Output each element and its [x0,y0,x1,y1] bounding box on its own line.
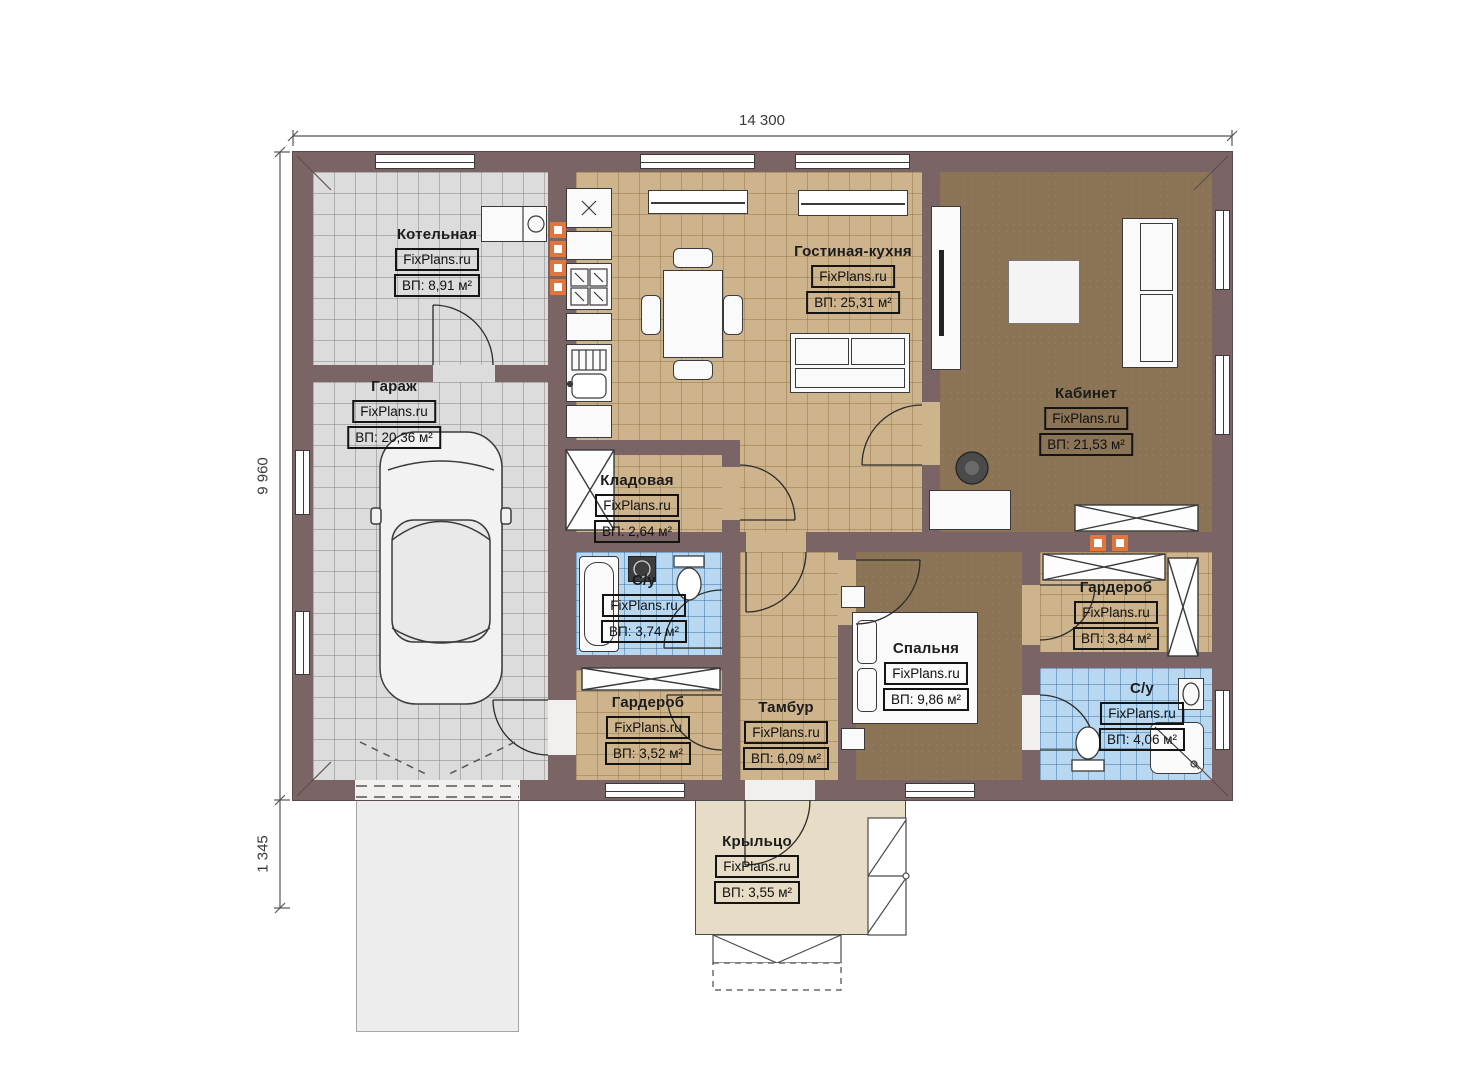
watermark: FixPlans.ru [744,721,828,744]
room-label-wardrobe2: Гардероб FixPlans.ru ВП: 3,84 м² [1073,579,1159,650]
room-name: Тамбур [743,699,829,716]
room-label-boiler: Котельная FixPlans.ru ВП: 8,91 м² [394,226,480,297]
porch-steps [713,935,841,990]
window [295,450,310,515]
floor-plan-canvas: 14 300 9 960 1 345 Котельная FixPlans.ru… [0,0,1473,1080]
room-label-bedroom: Спальня FixPlans.ru ВП: 9,86 м² [883,640,969,711]
chair [641,295,661,335]
pillow [857,668,877,712]
window [1215,210,1230,290]
watermark: FixPlans.ru [395,248,479,271]
watermark: FixPlans.ru [1100,702,1184,725]
tv-cabinet [931,206,961,370]
room-area: ВП: 8,91 м² [394,274,480,297]
nightstand [841,586,865,608]
vent-marker [550,279,566,295]
wall-patch [576,440,722,455]
room-area: ВП: 3,84 м² [1073,627,1159,650]
room-area: ВП: 4,06 м² [1099,728,1185,751]
office-couch-seat [1140,223,1173,291]
room-name: Котельная [394,226,480,243]
room-name: Кладовая [594,472,680,489]
vent-marker [1090,535,1106,551]
watermark: FixPlans.ru [352,400,436,423]
chair [723,295,743,335]
room-label-office: Кабинет FixPlans.ru ВП: 21,53 м² [1039,385,1133,456]
garage-gate-opening [355,780,520,800]
dining-table [663,270,723,358]
room-name: Крыльцо [714,833,800,850]
kitchen-counter [566,231,612,260]
driveway [356,800,519,1032]
room-label-tambour: Тамбур FixPlans.ru ВП: 6,09 м² [743,699,829,770]
vent-marker [550,222,566,238]
sofa-cushion [851,338,905,365]
door-opening [746,532,806,552]
chair [673,360,713,380]
tv-screen [939,250,944,336]
dimension-porch-offset: 1 345 [255,835,272,873]
room-area: ВП: 6,09 м² [743,747,829,770]
kitchen-counter [566,313,612,341]
door-opening [433,365,495,382]
room-label-livingkitchen: Гостиная-кухня FixPlans.ru ВП: 25,31 м² [794,243,912,314]
entry-door-opening [745,780,815,800]
pillow [857,620,877,664]
door-opening [548,700,576,755]
room-label-bath2: С/у FixPlans.ru ВП: 4,06 м² [1099,680,1185,751]
room-area: ВП: 25,31 м² [806,291,900,314]
window [640,154,755,169]
chair [673,248,713,268]
boiler-unit [481,206,547,242]
office-desk [929,490,1011,530]
window [1215,690,1230,750]
kitchen-sink-unit [566,344,612,402]
room-area: ВП: 21,53 м² [1039,433,1133,456]
room-name: Гостиная-кухня [794,243,912,260]
room-name: Гардероб [605,694,691,711]
radiator [648,190,748,214]
room-name: Спальня [883,640,969,657]
room-name: Гардероб [1073,579,1159,596]
door-opening [1022,695,1040,750]
room-name: Кабинет [1039,385,1133,402]
office-couch-seat [1140,294,1173,362]
room-name: Гараж [347,378,441,395]
door-opening [722,467,740,520]
room-label-wardrobe1: Гардероб FixPlans.ru ВП: 3,52 м² [605,694,691,765]
dimension-width: 14 300 [739,112,785,129]
radiator [798,190,908,216]
room-label-bath1: С/у FixPlans.ru ВП: 3,74 м² [601,572,687,643]
room-name: С/у [1099,680,1185,697]
watermark: FixPlans.ru [884,662,968,685]
room-area: ВП: 9,86 м² [883,688,969,711]
kitchen-hood-unit [566,188,612,228]
dimension-height: 9 960 [255,457,272,495]
window [295,611,310,675]
watermark: FixPlans.ru [1074,601,1158,624]
vent-marker [550,260,566,276]
room-area: ВП: 3,52 м² [605,742,691,765]
vent-marker [550,241,566,257]
watermark: FixPlans.ru [606,716,690,739]
sofa-cushion [795,338,849,365]
window [375,154,475,169]
watermark: FixPlans.ru [1044,407,1128,430]
window [1215,355,1230,435]
watermark: FixPlans.ru [715,855,799,878]
room-area: ВП: 20,36 м² [347,426,441,449]
room-label-porch: Крыльцо FixPlans.ru ВП: 3,55 м² [714,833,800,904]
nightstand [841,728,865,750]
kitchen-stove [566,263,612,310]
watermark: FixPlans.ru [602,594,686,617]
kitchen-counter [566,405,612,438]
room-area: ВП: 3,74 м² [601,620,687,643]
door-opening [922,402,940,465]
room-label-storage: Кладовая FixPlans.ru ВП: 2,64 м² [594,472,680,543]
watermark: FixPlans.ru [595,494,679,517]
watermark: FixPlans.ru [811,265,895,288]
window [905,783,975,798]
sofa-seat [795,368,905,388]
room-name: С/у [601,572,687,589]
vent-marker [1112,535,1128,551]
door-opening [1022,585,1040,645]
office-rug [1008,260,1080,324]
room-area: ВП: 3,55 м² [714,881,800,904]
window [605,783,685,798]
window [795,154,910,169]
room-area: ВП: 2,64 м² [594,520,680,543]
room-label-garage: Гараж FixPlans.ru ВП: 20,36 м² [347,378,441,449]
